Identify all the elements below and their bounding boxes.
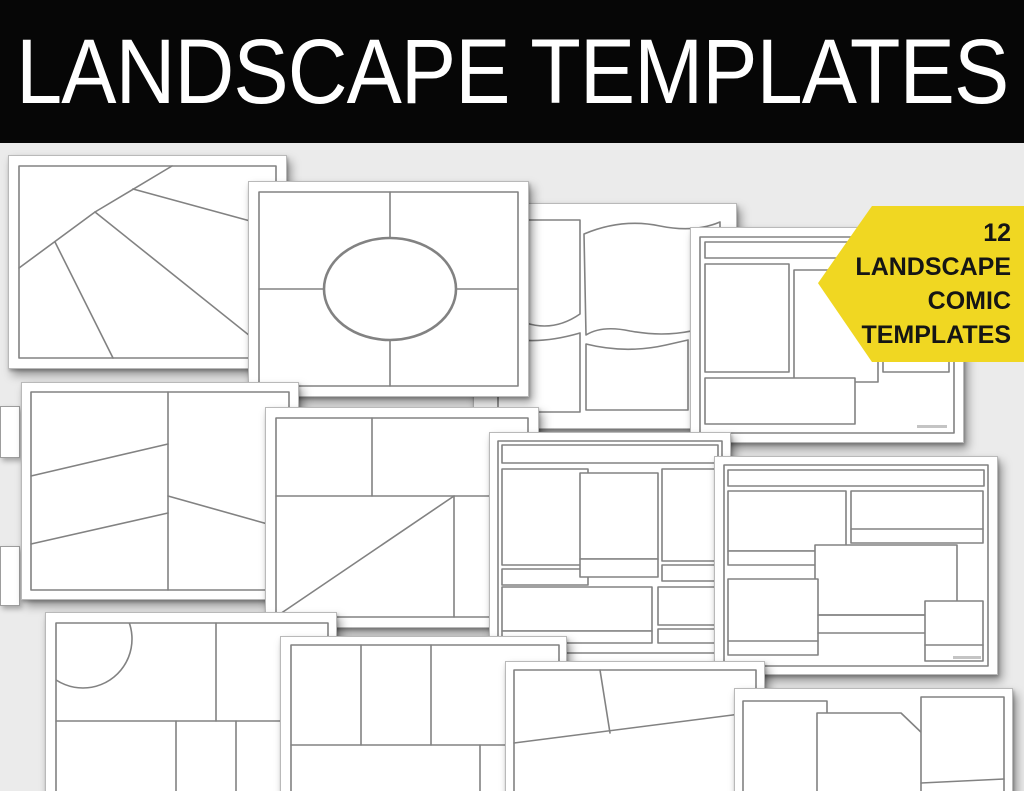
template-page-banner-collage (489, 432, 731, 662)
template-page-slanted-dividers (505, 661, 765, 791)
watermark (953, 656, 981, 659)
template-page-grid-ellipse (248, 181, 529, 397)
panel-layout (735, 689, 1012, 791)
badge-line: LANDSCAPE (818, 250, 1011, 284)
template-page-scattered-rects (714, 456, 998, 675)
panel-layout (249, 182, 528, 396)
template-page-radial-burst (8, 155, 287, 369)
page-fragment (0, 546, 20, 606)
product-image: LANDSCAPE TEMPLATES (0, 0, 1024, 791)
watermark (917, 425, 947, 428)
header-bar: LANDSCAPE TEMPLATES (0, 0, 1024, 143)
panel-layout (490, 433, 730, 661)
panel-layout (22, 383, 298, 599)
template-page-cut-corners (734, 688, 1013, 791)
template-page-slanted-rows (21, 382, 299, 600)
panel-layout (9, 156, 286, 368)
panel-layout (506, 662, 764, 791)
page-title: LANDSCAPE TEMPLATES (16, 26, 1008, 118)
page-fragment (0, 406, 20, 458)
panel-layout (715, 457, 997, 674)
badge-line: COMIC (818, 284, 1011, 318)
